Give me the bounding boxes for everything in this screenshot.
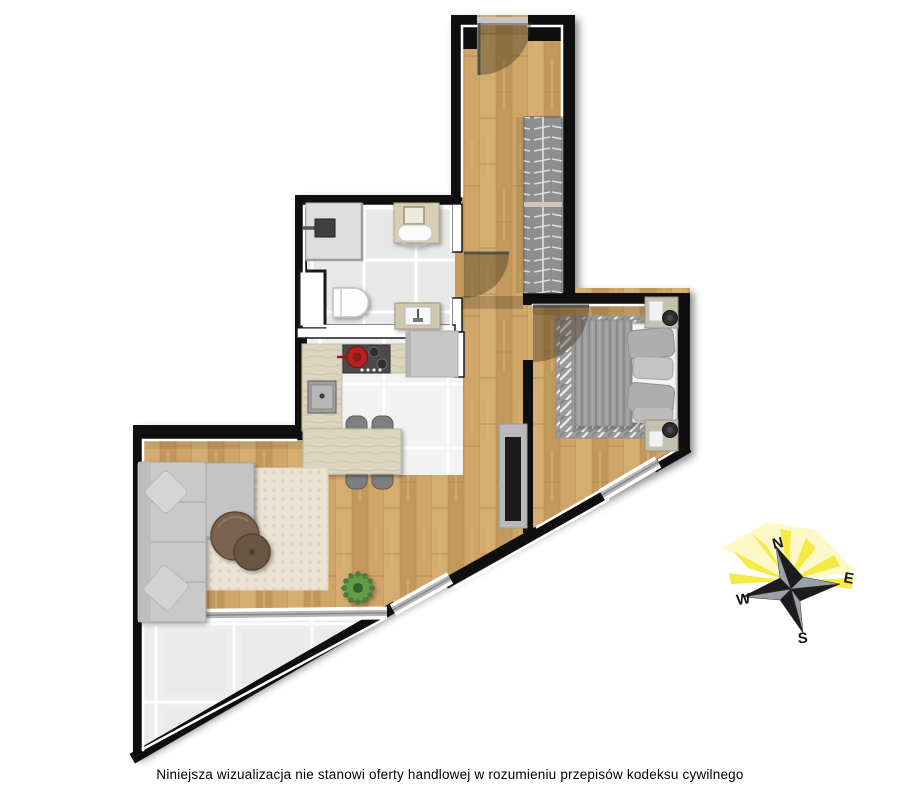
wall-bedroom-right: [678, 293, 690, 453]
nightstand-top: [645, 297, 678, 328]
washing-machine: [395, 303, 440, 329]
toilet: [333, 288, 369, 317]
bed-pillow: [632, 356, 673, 380]
tv-screen: [505, 437, 521, 521]
compass-label-east: E: [842, 569, 855, 587]
wash-basin: [398, 225, 432, 241]
wardrobe: [524, 117, 562, 293]
bed-pillow: [633, 407, 673, 421]
stove-with-pot: [337, 345, 390, 373]
tv-panel: [499, 424, 527, 528]
vanity-sink: [394, 203, 439, 246]
burner: [369, 347, 379, 357]
bed-pillow: [627, 327, 675, 360]
wall-hall-right: [563, 15, 575, 295]
dining-table: [303, 429, 401, 474]
duvet: [572, 320, 632, 426]
kitchen-counter-grey: [406, 331, 458, 377]
shower-head: [315, 219, 335, 237]
compass-label-south: S: [797, 630, 808, 648]
floorplan-svg: N E W S: [0, 0, 900, 795]
wall-bathroom-right-upper: [452, 204, 462, 252]
bed: [572, 320, 676, 426]
floorplan-page: N E W S Niniejsza wizualizacja nie stano…: [0, 0, 900, 795]
disclaimer-text: Niniejsza wizualizacja nie stanowi ofert…: [0, 767, 900, 782]
wall-hall-left: [451, 15, 462, 201]
faucet: [319, 393, 324, 398]
wardrobe-divider: [524, 202, 562, 207]
bathroom-mirror: [404, 207, 424, 224]
wall-living-top: [133, 425, 307, 440]
kitchen-sink: [308, 381, 336, 413]
burner: [377, 359, 387, 369]
nightstand-bottom: [645, 420, 678, 451]
compass: N E W S: [722, 522, 856, 647]
shower: [303, 203, 362, 260]
entrance-hall: [524, 117, 562, 293]
